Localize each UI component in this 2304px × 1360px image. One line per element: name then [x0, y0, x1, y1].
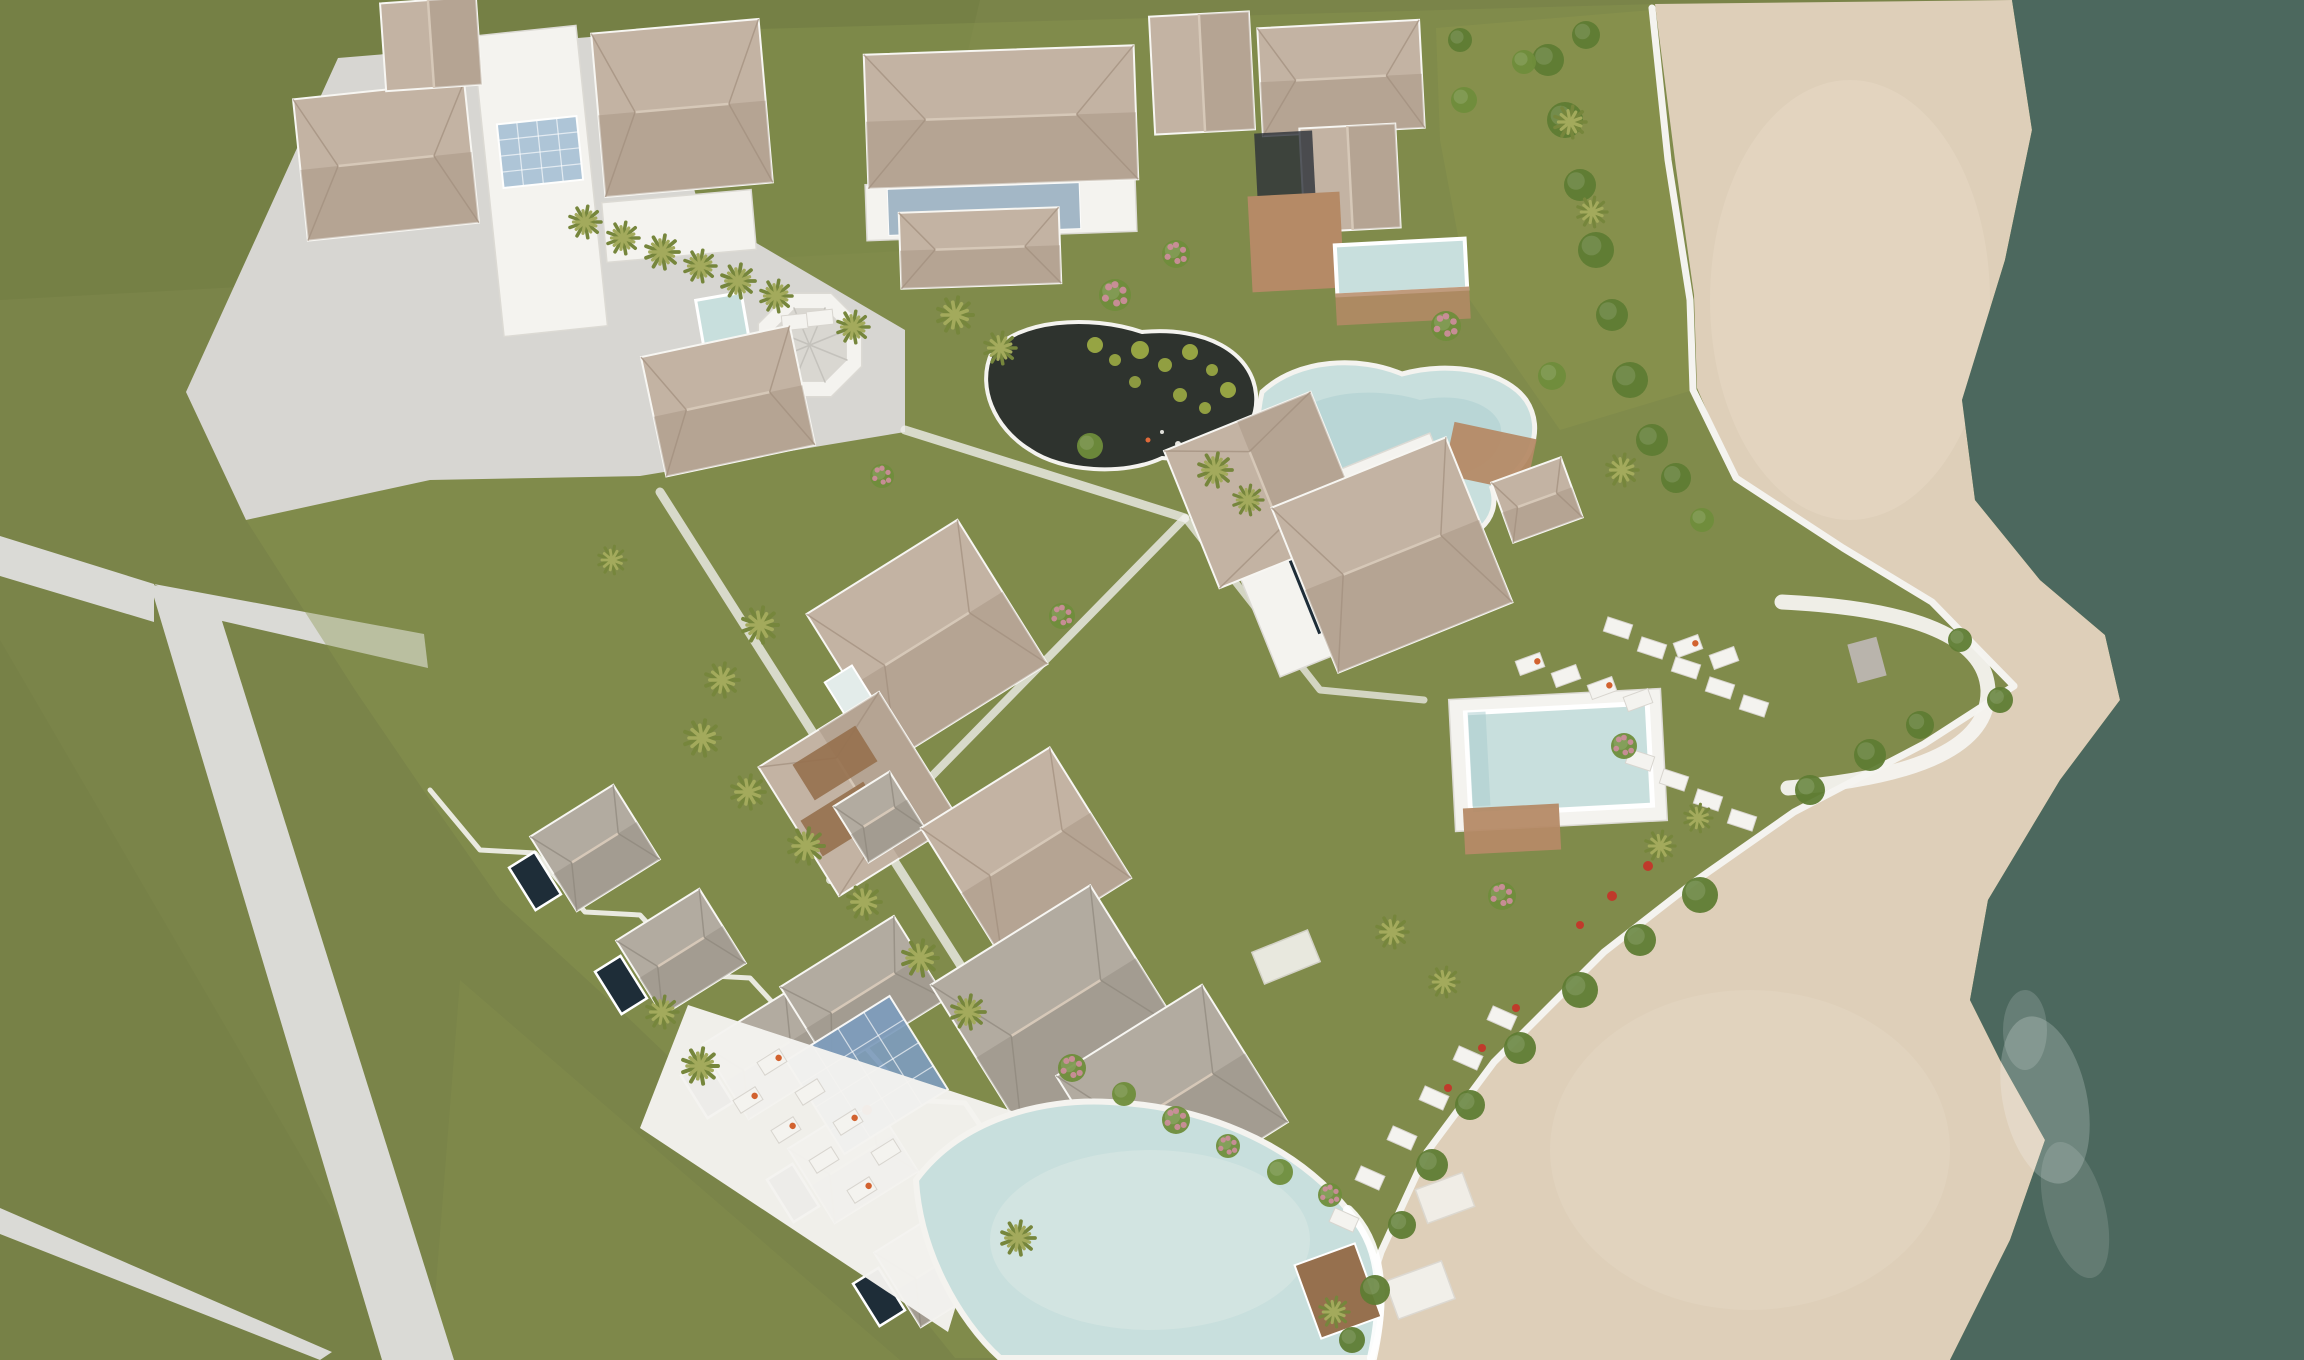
atrium-skylight	[497, 116, 583, 188]
villa-pool	[1335, 239, 1467, 296]
shoreline-shrub	[1612, 362, 1648, 398]
shoreline-shrub	[1572, 21, 1600, 49]
koi-fish	[1160, 430, 1164, 434]
shoreline-shrub	[1854, 739, 1886, 771]
lily-pad	[1131, 341, 1149, 359]
lily-pad	[1182, 344, 1198, 360]
shoreline-shrub	[1906, 711, 1934, 739]
red-parasol	[1607, 891, 1617, 901]
villa-wood-deck	[1248, 192, 1345, 293]
lily-pad	[1206, 364, 1218, 376]
shoreline-shrub	[1532, 44, 1564, 76]
pavilion-sofa	[806, 309, 833, 327]
koi-fish	[1146, 438, 1151, 443]
red-parasol	[1478, 1044, 1486, 1052]
resort-aerial-rendering	[0, 0, 2304, 1360]
shoreline-shrub	[1360, 1275, 1390, 1305]
poolside-planter	[1216, 1134, 1240, 1158]
poolside-planter	[1267, 1159, 1293, 1185]
sand-highlight-south	[1550, 990, 1950, 1310]
flowering-tree	[1488, 882, 1516, 910]
flowering-tree	[1099, 279, 1131, 311]
shoreline-shrub	[1562, 972, 1598, 1008]
poolside-planter	[1162, 1106, 1190, 1134]
shoreline-shrub	[1416, 1149, 1448, 1181]
villa-north-roof	[1149, 11, 1255, 134]
poolside-planter	[1112, 1082, 1136, 1106]
poolside-planter	[1318, 1183, 1342, 1207]
lily-pad	[1173, 388, 1187, 402]
lily-pad	[1109, 354, 1121, 366]
shoreline-shrub	[1661, 463, 1691, 493]
flowering-tree	[1431, 311, 1461, 341]
garden-tree	[1451, 87, 1477, 113]
shoreline-shrub	[1448, 28, 1472, 52]
lily-pad	[1199, 402, 1211, 414]
garden-tree	[1077, 433, 1103, 459]
shoreline-shrub	[1339, 1327, 1365, 1353]
flowering-tree	[1049, 603, 1075, 629]
garden-tree	[1690, 508, 1714, 532]
garden-tree	[1538, 362, 1566, 390]
garden-tree	[1512, 50, 1536, 74]
shoreline-shrub	[1795, 775, 1825, 805]
shoreline-shrub	[1564, 169, 1596, 201]
lily-pad	[1087, 337, 1103, 353]
shoreline-shrub	[1682, 877, 1718, 913]
shoreline-shrub	[1455, 1090, 1485, 1120]
shoreline-shrub	[1596, 299, 1628, 331]
residence-pool	[1465, 703, 1652, 814]
flowering-tree	[870, 464, 894, 488]
lily-pad	[1129, 376, 1141, 388]
shoreline-shrub	[1636, 424, 1668, 456]
main-pool-shallow	[990, 1150, 1310, 1330]
shoreline-shrub	[1948, 628, 1972, 652]
lily-pad	[1158, 358, 1172, 372]
poolside-planter	[1058, 1054, 1086, 1082]
red-parasol	[1576, 921, 1584, 929]
sand-highlight-north	[1710, 80, 1990, 520]
gatehouse-roof	[380, 0, 482, 91]
screenshot-root: Aerial top-down 3D rendering of a beachf…	[0, 0, 2304, 1360]
residence-wood-deck	[1463, 804, 1561, 855]
clubhouse-pavilion-roof	[899, 207, 1062, 289]
flowering-tree	[1162, 240, 1190, 268]
shoreline-shrub	[1504, 1032, 1536, 1064]
red-parasol	[1444, 1084, 1452, 1092]
beach-villa-roof	[1257, 20, 1424, 136]
flowering-tree	[1611, 733, 1637, 759]
surf-foam	[2003, 990, 2047, 1070]
red-parasol	[1512, 1004, 1520, 1012]
clubhouse-roof	[864, 45, 1139, 188]
lily-pad	[1220, 382, 1236, 398]
arrival-hall-roof	[293, 81, 479, 240]
shoreline-shrub	[1624, 924, 1656, 956]
red-parasol	[1643, 861, 1653, 871]
shoreline-shrub	[1578, 232, 1614, 268]
shoreline-shrub	[1987, 687, 2013, 713]
shoreline-shrub	[1388, 1211, 1416, 1239]
lobby-roof	[591, 19, 773, 197]
